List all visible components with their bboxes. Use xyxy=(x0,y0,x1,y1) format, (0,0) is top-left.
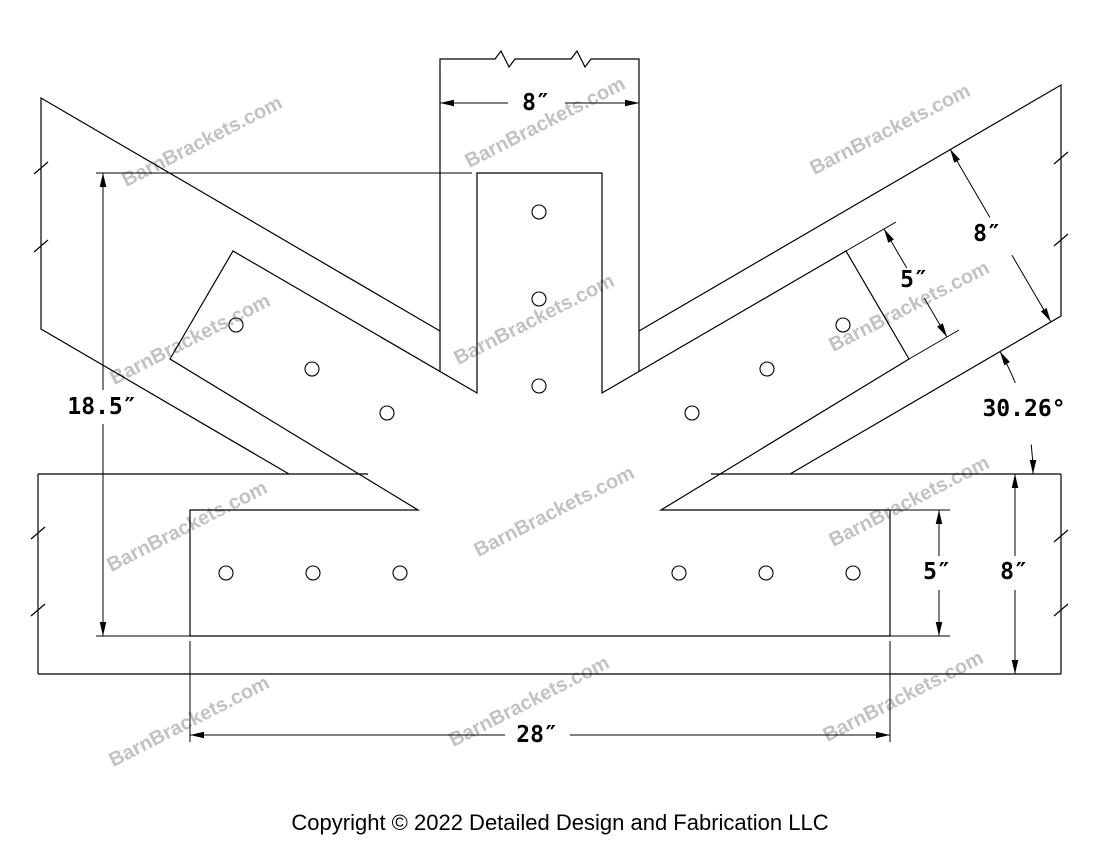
dim-label-brace-angle: 30.26° xyxy=(982,396,1065,422)
copyright-text: Copyright © 2022 Detailed Design and Fab… xyxy=(291,810,828,835)
dim-label-overall-height: 18.5″ xyxy=(67,394,136,420)
drawing-sheet: BarnBrackets.com BarnBrackets.com BarnBr… xyxy=(0,0,1100,850)
fan-bracket-drawing: BarnBrackets.com BarnBrackets.com BarnBr… xyxy=(0,0,1100,850)
dim-label-post-width: 8″ xyxy=(522,90,550,116)
dim-label-diagonal-plate-width: 5″ xyxy=(900,267,928,293)
dim-label-horizontal-beam-depth: 8″ xyxy=(1000,559,1028,585)
dim-label-bottom-plate-length: 28″ xyxy=(516,722,558,748)
dim-label-bottom-plate-width: 5″ xyxy=(923,559,951,585)
dim-label-diagonal-beam-width: 8″ xyxy=(973,221,1001,247)
